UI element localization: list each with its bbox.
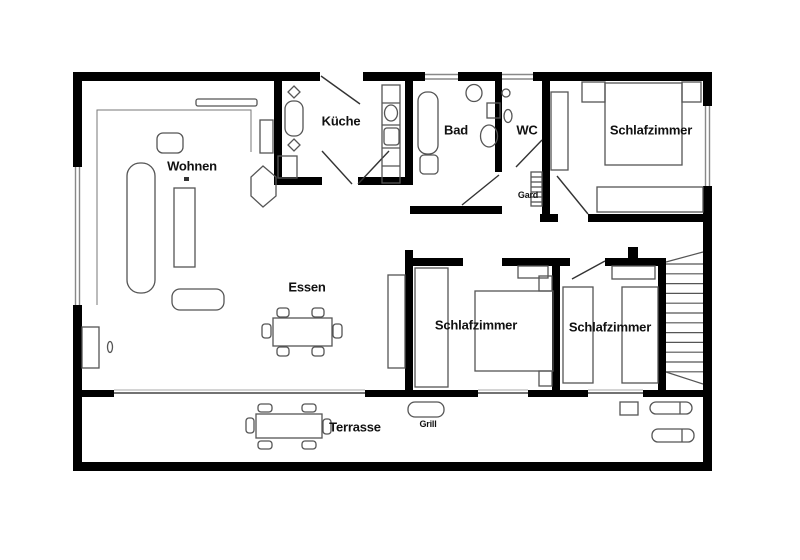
door-swing-wc	[516, 140, 542, 167]
sofa	[127, 163, 155, 293]
wc-sink	[502, 89, 510, 97]
sideboard	[196, 99, 257, 106]
room-label-schlafzimmer-top: Schlafzimmer	[610, 123, 692, 138]
room-label-grill: Grill	[419, 419, 436, 429]
wall-south	[643, 390, 712, 397]
wall	[73, 72, 82, 167]
door-swings	[321, 76, 605, 279]
dining-chair	[277, 347, 289, 356]
kitchen-counter-right	[382, 85, 400, 183]
bed	[622, 287, 658, 383]
room-label-wohnen: Wohnen	[167, 159, 217, 174]
room-label-bad: Bad	[444, 123, 468, 138]
door-swing-entrance	[321, 76, 360, 104]
sofa-table	[174, 188, 195, 267]
wall	[703, 72, 712, 106]
dresser	[612, 266, 655, 279]
room-label-wc: WC	[516, 123, 537, 138]
kitchen-counter-left	[285, 101, 303, 136]
kitchen-cooktop	[384, 128, 399, 145]
wall	[363, 72, 425, 81]
sun-lounger	[652, 429, 694, 442]
dining-table	[273, 318, 332, 346]
vase	[108, 342, 113, 353]
stair-cut-line	[666, 252, 703, 262]
room-label-essen: Essen	[288, 280, 325, 295]
toilet	[481, 125, 498, 147]
wall	[73, 462, 712, 471]
wall-wc-schlafzimmer	[542, 81, 550, 222]
coffee-table	[172, 289, 224, 310]
wall-schlafzimmer-top-south	[588, 214, 712, 222]
wall-south	[365, 390, 478, 397]
wardrobe	[551, 92, 568, 170]
wall-south	[528, 390, 588, 397]
wardrobe	[563, 287, 593, 383]
kitchen-diamond-marker	[288, 86, 300, 98]
fireplace	[82, 327, 99, 368]
wall	[533, 72, 712, 81]
wall-essen-schlafzimmer	[405, 250, 413, 390]
kitchen-sink	[385, 105, 398, 121]
terrace-chair	[302, 404, 316, 412]
nightstand	[539, 371, 552, 386]
side-table	[620, 402, 638, 415]
floor-plan: Wohnen Küche Bad WC Gard Schlafzimmer Sc…	[0, 0, 800, 560]
wall	[73, 72, 320, 81]
terrace-table	[256, 414, 322, 438]
wall	[703, 186, 712, 471]
wall-south	[80, 390, 114, 397]
dining-chair	[312, 308, 324, 317]
shelf	[388, 275, 405, 368]
lounge-chair-hexagon	[251, 166, 276, 207]
door-swing-bad	[462, 175, 499, 205]
sun-lounger	[650, 402, 692, 414]
wall-hall-south	[413, 258, 463, 266]
stair-cut-line	[666, 372, 703, 384]
terrace-chair	[246, 418, 254, 433]
terrace-chair	[302, 441, 316, 449]
wall-bad-wc	[495, 81, 502, 172]
door-swing-schlafzimmer-right	[572, 261, 605, 279]
wall-kueche-south	[358, 177, 413, 185]
terrace-chair	[258, 404, 272, 412]
wall-bad-south	[410, 206, 502, 214]
room-label-schlafzimmer-right: Schlafzimmer	[569, 320, 651, 335]
wall-stairs	[658, 258, 666, 390]
wall-stub	[628, 247, 638, 258]
washbasin	[466, 85, 482, 102]
wall-kueche-bad	[405, 81, 413, 185]
dining-chair	[262, 324, 271, 338]
garderobe-closet	[531, 172, 542, 206]
room-label-kueche: Küche	[322, 114, 361, 129]
wall	[73, 305, 82, 471]
nightstand	[682, 82, 701, 102]
room-label-schlafzimmer-mid: Schlafzimmer	[435, 318, 517, 333]
nightstand	[582, 82, 605, 102]
terrace-chair	[258, 441, 272, 449]
lamp-marker	[184, 177, 189, 181]
kitchen-diamond-marker	[288, 139, 300, 151]
windows	[76, 75, 710, 306]
dining-chair	[312, 347, 324, 356]
wall-vestibule-south	[540, 214, 558, 222]
staircase	[666, 252, 703, 384]
wc-toilet	[504, 110, 512, 123]
door-swing-schlafzimmer-top	[557, 176, 588, 214]
dresser	[597, 187, 703, 212]
floor-plan-drawing	[0, 0, 800, 560]
grill-unit	[408, 402, 444, 417]
bathtub	[418, 92, 438, 154]
dining-chair	[277, 308, 289, 317]
room-label-terrasse: Terrasse	[329, 420, 381, 435]
door-swing-kueche	[322, 151, 352, 184]
wall-hall-south	[605, 258, 666, 266]
dining-chair	[333, 324, 342, 338]
tv-board	[260, 120, 273, 153]
room-label-garderobe: Gard	[518, 190, 538, 200]
shower	[420, 155, 438, 174]
wall	[458, 72, 502, 81]
armchair	[157, 133, 183, 153]
